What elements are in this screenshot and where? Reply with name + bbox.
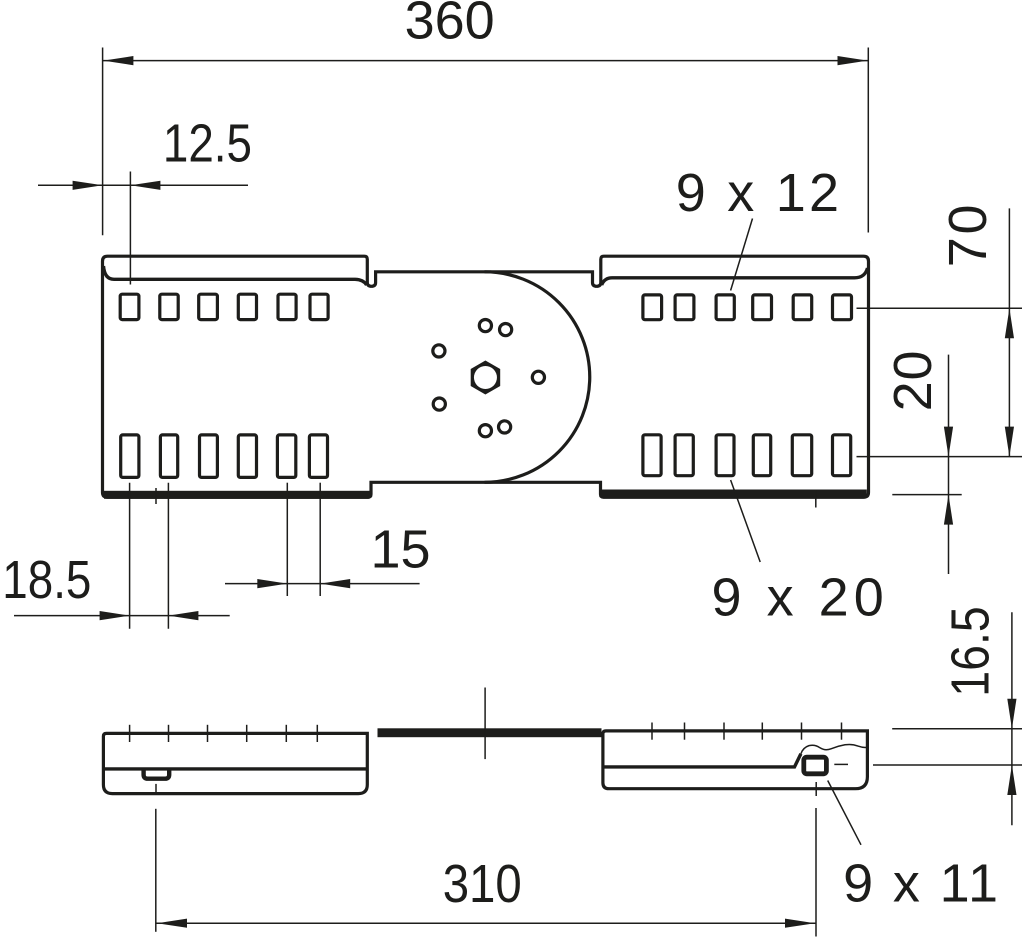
svg-text:9 x 12: 9 x 12 xyxy=(676,163,839,223)
svg-text:310: 310 xyxy=(443,854,522,914)
svg-text:18.5: 18.5 xyxy=(2,550,91,610)
svg-text:9 x 20: 9 x 20 xyxy=(712,567,884,627)
svg-text:360: 360 xyxy=(405,0,495,51)
svg-text:16.5: 16.5 xyxy=(941,606,1001,697)
svg-text:20: 20 xyxy=(883,350,943,411)
svg-text:12.5: 12.5 xyxy=(163,114,252,174)
svg-text:15: 15 xyxy=(371,520,431,580)
